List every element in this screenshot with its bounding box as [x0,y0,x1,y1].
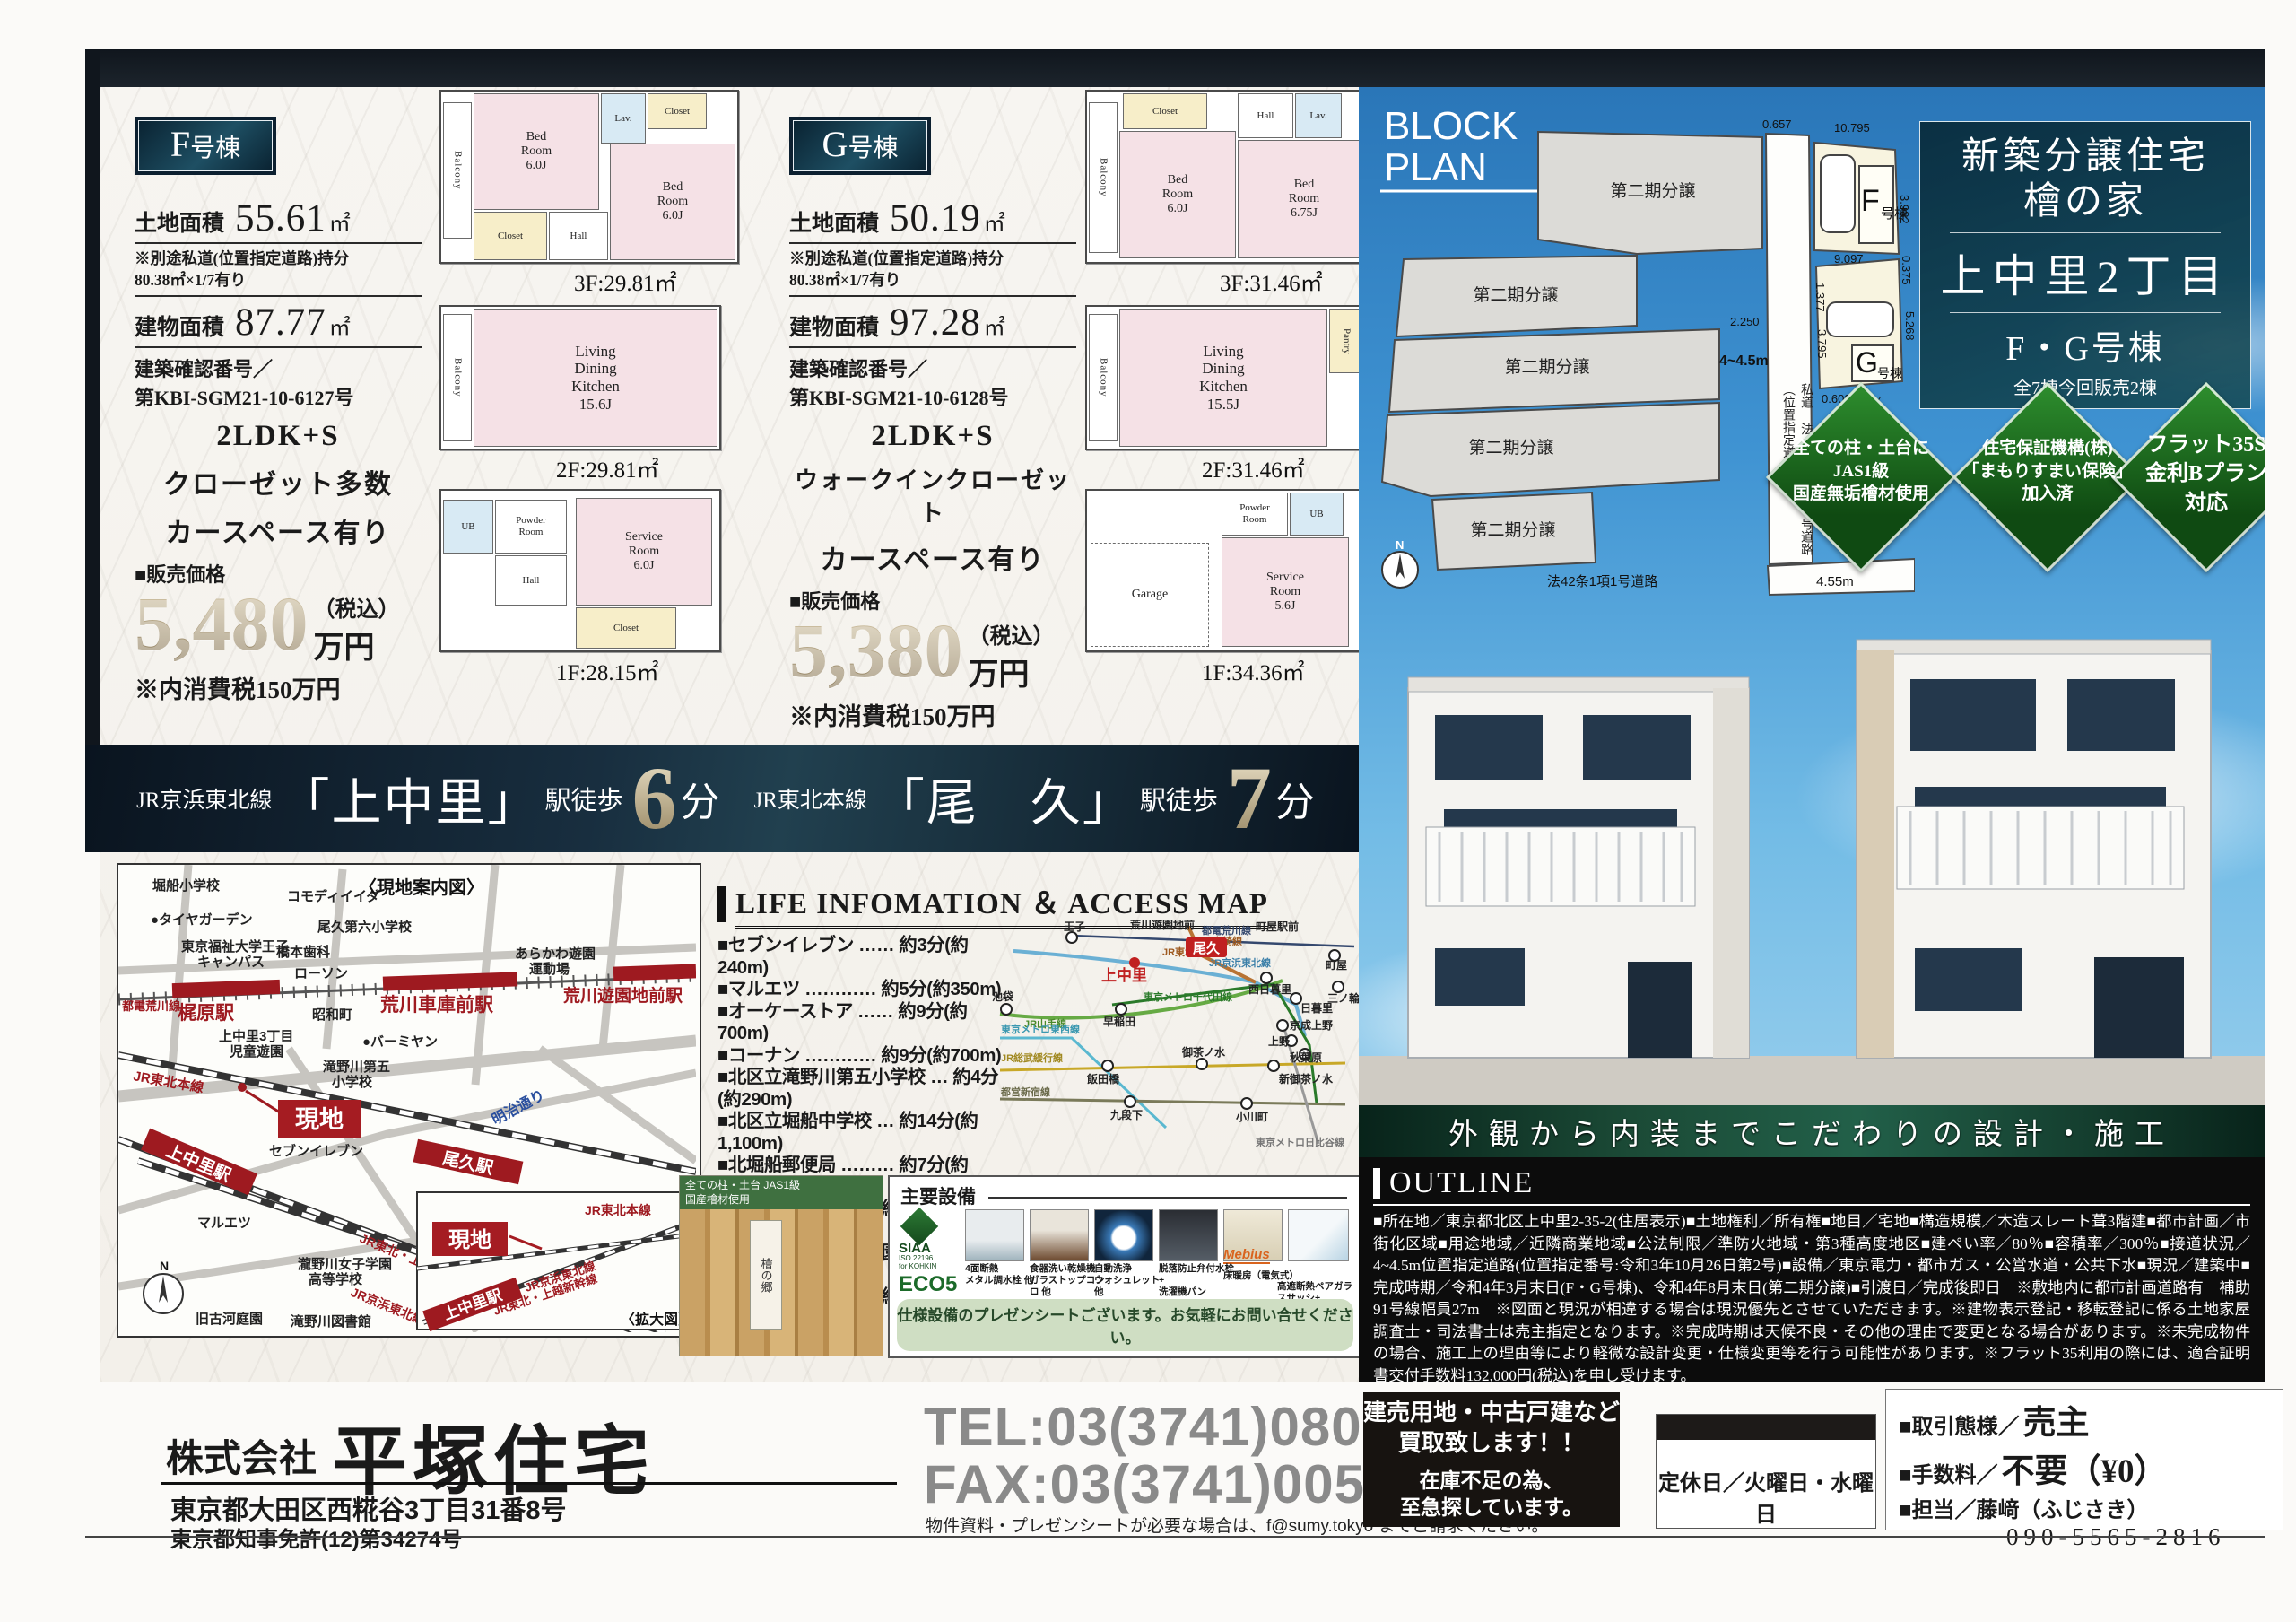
contact-value: 藤﨑（ふじさき） [1977,1492,2149,1523]
buyback-notice-box: 建売用地・中古戸建など 買取致します！！ 在庫不足の為、 至急探しています。 [1363,1392,1620,1527]
f-price-row: 5,480 （税込） 万円 [135,588,422,667]
g-building-value: 97.28 [890,301,981,344]
blockplan-parcel-3: 第二期分譲 [1504,357,1589,377]
f-building-label: 建物面積 [135,310,224,342]
f-spec-block: 土地面積 55.61 ㎡ ※別途私道(位置指定道路)持分 80.38㎡×1/7有… [135,193,422,705]
f-1f-service-room: Service Room 6.0J [576,498,712,606]
rail-network-map: 王子 荒川遊園地前 町屋駅前 町屋 三ノ輪 西日暮里 日暮里 池袋 早稲田 京成… [987,920,1359,1166]
title-line-4: F・G号棟 [1920,320,2250,370]
g-price-unit: 万円 [969,650,1055,693]
rail-ochanomizu: 御茶ノ水 [1181,1045,1226,1059]
rail-kaminakazato-station: 上中里 [1101,966,1147,984]
blockplan-dim-0657: 0.657 [1762,118,1792,131]
f-badge-letter: F [170,124,190,164]
banner-walk-1: 駅徒歩 [544,780,622,817]
rail-nishinippori: 西日暮里 [1248,982,1291,996]
title-divider-1 [1950,232,2221,233]
station-access-banner: JR京浜東北線 「上中里」 駅徒歩 6 分 JR東北本線 「尾 久」 駅徒歩 7… [85,745,1359,852]
diamond-3-line-2: 金利Bプラン [2112,459,2265,488]
map-poi-hashimoto: 橋本歯科 [276,944,330,960]
f-land-row: 土地面積 55.61 ㎡ [135,193,422,244]
blockplan-dim-3795: 3.795 [1815,329,1829,359]
f-feature-1: クローゼット多数 [135,462,422,501]
map-poi-library: 滝野川図書館 [291,1313,371,1330]
access-item: ■コーナン ………… 約9分(約700m) [717,1045,1004,1068]
phone-fax: FAX:03(3741)0050 [924,1453,1396,1515]
g-3f-area: 3F:31.46㎡ [1220,266,1323,298]
mebius-logo: Mebius [1223,1247,1270,1264]
map-poi-joshi-1: 瀧野川女子学園 [298,1256,392,1272]
diamond-3-line-1: フラット35S [2112,431,2265,459]
access-title-bar [717,886,726,922]
banner-line-1: JR京浜東北線 [136,782,272,815]
outline-title-bar [1373,1168,1380,1199]
map-poi-lawson: ローソン [294,966,348,981]
banner-unit-2: 分 [1275,770,1315,827]
g-spec-block: 土地面積 50.19 ㎡ ※別途私道(位置指定道路)持分 80.38㎡×1/7有… [789,193,1076,732]
equipment-photo-faucet [1159,1209,1218,1261]
left-frame-edge [85,49,100,852]
f-1f-area: 1F:28.15㎡ [556,655,659,687]
photo-caption-text: 外観から内装までこだわりの設計・施工 [1448,1110,2175,1153]
rail-keiseiueno: 京成上野 [1290,1018,1333,1032]
g-badge-suffix: 号棟 [848,135,898,162]
equipment-title-rule [988,1197,1347,1199]
g-confirmation-number: 建築確認番号／ 第KBI-SGM21-10-6128号 [789,348,1076,413]
g-building-label: 建物面積 [789,310,879,342]
map-poi-horifune: 堀船小学校 [152,877,221,894]
access-item: ■北区立堀船中学校 … 約14分(約1,100m) [717,1111,1004,1155]
rail-ogawamachi: 小川町 [1236,1110,1268,1123]
map-poi-seven: セブンイレブン [269,1143,363,1159]
equipment-panel: 主要設備 SIAA ISO 22196 for KOHKIN ECO5 Mebi… [888,1175,1362,1358]
hinoki-photo-panel: 全ての柱・土台 JAS1級 国産檜材使用 檜の郷 [679,1175,883,1356]
map-poi-oku6: 尾久第六小学校 [317,919,413,935]
g-unit-badge: G号棟 [789,117,931,175]
map-poi-joshi-2: 高等学校 [309,1271,363,1287]
f-feature-2: カースペース有り [135,510,422,550]
g-land-row: 土地面積 50.19 ㎡ [789,193,1076,244]
deal-type-row: ■取引態様／ 売主 [1899,1395,2270,1443]
f-3f-closet-1: Closet [648,93,707,129]
blockplan-parcel-4: 第二期分譲 [1468,438,1553,458]
f-1f-closet: Closet [576,607,676,649]
g-building-row: 建物面積 97.28 ㎡ [789,297,1076,348]
rail-hibiya-label: 東京メトロ日比谷線 [1256,1136,1344,1148]
g-3f-bedroom-2: Bed Room 6.75J [1238,140,1370,258]
blockplan-road-width: 4~4.5m [1719,353,1769,369]
banner-walk-2: 駅徒歩 [1140,780,1218,817]
company-underline [161,1482,897,1485]
phone-tel: TEL:03(3741)0800 [924,1396,1393,1458]
f-2f-floorplan: Balcony Living Dining Kitchen 15.6J [439,305,721,450]
f-layout: 2LDK+S [135,420,422,453]
f-building-unit: ㎡ [329,310,351,341]
access-item: ■北区立滝野川第五小学校 … 約4分(約290m) [717,1067,1004,1111]
access-item: ■セブンイレブン …… 約3分(約240m) [717,935,1004,979]
map-poi-univ-2: キャンパス [197,955,265,970]
map-poi-bamiyan: ●バーミヤン [362,1034,438,1050]
eco5-logo-text: ECO5 [899,1274,958,1295]
diamond-1-line-2: JAS1級 [1767,460,1955,484]
rail-ikebukuro: 池袋 [992,990,1014,1003]
outline-header: OUTLINE [1373,1166,2250,1200]
hinoki-wood-photo: 檜の郷 [680,1209,883,1356]
f-unit-badge: F号棟 [135,117,276,175]
f-land-value: 55.61 [235,196,326,240]
banner-line-2: JR東北本線 [754,782,867,815]
g-land-label: 土地面積 [789,205,879,238]
blockplan-dim-1377: 1.377 [1813,283,1827,312]
buyback-line-1: 建売用地・中古戸建など 買取致します！！ [1363,1398,1620,1459]
banner-unit-1: 分 [681,770,720,827]
buyback-line-2: 在庫不足の為、 至急探しています。 [1363,1468,1620,1522]
access-item: ■オーケーストア …… 約9分(約700m) [717,1001,1004,1045]
g-price-tax: （税込） [969,618,1055,650]
blockplan-parcel-2: 第二期分譲 [1473,285,1558,305]
map-inset-tohoku-label: JR東北本線 [585,1203,651,1217]
f-tax-note: ※内消費税150万円 [135,670,422,705]
g-1f-area: 1F:34.36㎡ [1202,655,1305,687]
f-badge-suffix: 号棟 [190,135,240,162]
blockplan-f-letter: F [1861,184,1880,218]
g-land-unit: ㎡ [984,205,1005,237]
map-poi-jido-2: 児童遊園 [229,1043,283,1060]
map-poi-showa: 昭和町 [312,1007,352,1023]
f-confirmation-number: 建築確認番号／ 第KBI-SGM21-10-6127号 [135,348,422,413]
rail-sobu-label: JR総武緩行線 [1001,1051,1063,1064]
blockplan-title-2: PLAN [1384,145,1487,189]
f-price-tax: （税込） [314,591,400,623]
rail-oku-station: 尾久 [1193,940,1221,956]
rail-chiyoda-label: 東京メトロ千代田線 [1144,990,1232,1003]
g-2f-area: 2F:31.46㎡ [1202,452,1305,484]
g-2f-balcony: Balcony [1089,314,1118,441]
map-inset-genchi: 現地 [448,1228,491,1252]
g-3f-balcony: Balcony [1089,102,1118,253]
outline-text: ■所在地／東京都北区上中里2-35-2(住居表示)■土地権利／所有権■地目／宅地… [1373,1211,2250,1387]
diamond-1-line-3: 国産無垢檜材使用 [1767,483,1955,506]
outline-section: OUTLINE ■所在地／東京都北区上中里2-35-2(住居表示)■土地権利／所… [1359,1157,2265,1382]
rail-machiya: 町屋 [1326,959,1347,972]
houses-rendering [1359,554,2265,1105]
f-building-row: 建物面積 87.77 ㎡ [135,297,422,348]
outline-title: OUTLINE [1389,1166,1534,1200]
hinoki-strip-text: 全ての柱・土台 JAS1級 国産檜材使用 [680,1176,883,1209]
rail-shinjuku-label: 都営新宿線 [1000,1086,1050,1098]
banner-station-2: 「尾 久」 [874,763,1135,835]
siaa-kohkin-text: for KOHKIN [899,1263,958,1271]
blockplan-parcel-5: 第二期分譲 [1470,520,1555,540]
f-land-unit: ㎡ [329,205,351,237]
title-line-3: 上中里2丁目 [1920,240,2250,305]
site-map-svg: 上中里駅 尾久駅 梶原駅 荒川車庫前駅 荒川遊園地前駅 都電荒川線 JR東北本線… [118,865,696,1332]
g-1f-powder-room: Powder Room [1222,493,1288,536]
rail-ueno: 上野 [1268,1034,1290,1048]
g-feature-2: カースペース有り [789,537,1076,577]
rail-waseda: 早稲田 [1103,1015,1135,1028]
g-2f-ldk: Living Dining Kitchen 15.5J [1119,309,1327,447]
f-3f-closet-2: Closet [474,212,547,260]
rail-iidabashi: 飯田橋 [1086,1072,1120,1086]
property-title-box: 新築分譲住宅 檜の家 上中里2丁目 F・G号棟 全7棟今回販売2棟 [1919,121,2251,409]
rail-yuenchimae: 荒川遊園地前 [1129,920,1195,931]
g-badge-letter: G [822,124,848,164]
g-1f-garage: Garage [1091,543,1209,647]
title-divider-2 [1950,312,2221,313]
contact-label: ■担当／ [1899,1492,1977,1523]
diamond-1-line-1: 全ての柱・土台に [1767,437,1955,460]
site-guide-map: 上中里駅 尾久駅 梶原駅 荒川車庫前駅 荒川遊園地前駅 都電荒川線 JR東北本線… [117,863,701,1338]
f-2f-area: 2F:29.81㎡ [556,452,659,484]
f-1f-hall: Hall [495,555,567,606]
g-3f-lavatory: Lav. [1295,93,1342,138]
company-prefix: 株式会社 [166,1428,317,1483]
holiday-box-header [1657,1415,1875,1440]
f-price-unit: 万円 [314,623,400,667]
f-1f-floorplan: UB Powder Room Service Room 6.0J Hall Cl… [439,489,721,652]
blockplan-dim-0375: 0.375 [1900,256,1913,285]
rail-shinochanomizu: 新御茶ノ水 [1279,1072,1334,1086]
rail-tozai-label: 東京メトロ東西線 [1001,1023,1080,1035]
map-compass-n: N [160,1259,169,1273]
holiday-text: 定休日／火曜日・水曜日 [1657,1465,1875,1528]
map-poi-maruetsu: マルエツ [197,1216,251,1231]
map-poi-jido-1: 上中里3丁目 [219,1028,293,1044]
holiday-box: 定休日／火曜日・水曜日 [1656,1414,1876,1529]
hinoki-tag-label: 檜の郷 [750,1220,782,1330]
photo-caption-band: 外観から内装までこだわりの設計・施工 [1359,1105,2265,1157]
f-3f-hall: Hall [549,212,608,260]
f-building-value: 87.77 [235,301,326,344]
equipment-photo-bath [965,1209,1024,1261]
g-price-row: 5,380 （税込） 万円 [789,615,1076,693]
title-line-1: 新築分譲住宅 [1920,135,2250,179]
g-3f-floorplan: Balcony Closet Hall Lav. Bed Room 6.0J B… [1085,90,1376,264]
deal-type-value: 売主 [2023,1395,2090,1443]
siaa-diamond-icon [900,1208,938,1245]
transaction-info-box: ■取引態様／ 売主 ■手数料／ 不要（¥0） ■担当／ 藤﨑（ふじさき） 090… [1885,1389,2283,1530]
diamond-text-1: 全ての柱・土台に JAS1級 国産無垢檜材使用 [1767,437,1955,506]
map-kajiwara-station: 梶原駅 [178,1003,235,1024]
f-3f-bedroom-1: Bed Room 6.0J [474,93,599,210]
blockplan-dim-3982: 3.982 [1898,195,1911,224]
f-land-label: 土地面積 [135,205,224,238]
g-layout: 2LDK+S [789,420,1076,453]
map-toden-line-label: 都電荒川線 [121,999,181,1013]
map-guide-title: 〈現地案内図〉 [359,876,484,898]
equipment-title: 主要設備 [900,1182,976,1209]
flyer-page: F号棟 土地面積 55.61 ㎡ ※別途私道(位置指定道路)持分 80.38㎡×… [0,0,2296,1622]
blockplan-g-letter: G [1856,346,1878,379]
blockplan-dim-10795: 10.795 [1834,121,1870,135]
f-3f-area: 3F:29.81㎡ [574,266,677,298]
top-frame-band [85,49,2265,87]
blockplan-dim-2250: 2.250 [1730,315,1760,328]
g-3f-hall: Hall [1238,93,1293,138]
diamond-text-3: フラット35S 金利Bプラン 対応 [2112,431,2265,518]
f-road-note: ※別途私道(位置指定道路)持分 80.38㎡×1/7有り [135,244,422,297]
g-1f-floorplan: Garage Powder Room UB Service Room 5.6J [1085,489,1367,652]
equipment-photo-toilet [1094,1209,1153,1261]
rail-nippori: 日暮里 [1300,1001,1333,1015]
diamond-3-line-3: 対応 [2112,489,2265,518]
fee-value: 不要（¥0） [2002,1443,2168,1492]
rail-oji: 王子 [1064,920,1085,933]
map-poi-univ-1: 東京福祉大学王子 [181,938,289,955]
blockplan-parcel-1: 第二期分譲 [1610,181,1695,201]
f-3f-bedroom-2: Bed Room 6.0J [610,144,735,260]
map-shako-station: 荒川車庫前駅 [380,994,494,1016]
contact-row: ■担当／ 藤﨑（ふじさき） [1899,1492,2270,1523]
map-poi-takinogawa5-2: 小学校 [332,1074,373,1090]
map-poi-ground-2: 運動場 [529,962,570,977]
map-genchi-label: 現地 [295,1106,344,1133]
g-3f-bedroom-1: Bed Room 6.0J [1119,131,1236,258]
f-1f-powder-room: Powder Room [495,500,567,554]
map-poi-tiregarden: ●タイヤガーデン [151,911,253,928]
blockplan-g-suffix: 号棟 [1877,366,1902,380]
title-line-2: 檜の家 [1920,179,2250,224]
access-item: ■マルエツ ………… 約5分(約350m) [717,979,1004,1001]
rail-toden-label: 都電荒川線 [1201,924,1251,937]
f-3f-floorplan: Balcony Bed Room 6.0J Lav. Closet Bed Ro… [439,90,739,264]
rail-keihin-label: JR京浜東北線 [1209,956,1271,969]
fee-label: ■手数料／ [1899,1457,1998,1488]
siaa-text: SIAA [899,1242,958,1255]
g-building-unit: ㎡ [984,310,1005,341]
banner-minutes-2: 7 [1227,758,1272,839]
f-3f-balcony: Balcony [443,102,472,239]
g-land-value: 50.19 [890,196,981,240]
rail-kudanshita: 九段下 [1109,1108,1143,1121]
f-2f-balcony: Balcony [443,314,472,441]
blockplan-compass-n: N [1396,538,1404,552]
map-poi-takinogawa5-1: 滝野川第五 [323,1059,390,1075]
siaa-eco5-logo: SIAA ISO 22196 for KOHKIN ECO5 [899,1209,958,1295]
g-feature-1: ウォークインクローゼット [789,462,1076,528]
equipment-banner: 仕様設備のプレゼンシートございます。お気軽にお問い合せください。 [897,1299,1353,1351]
outline-rule [1373,1204,2250,1206]
g-price-number: 5,380 [789,615,963,688]
banner-minutes-1: 6 [632,758,677,839]
g-2f-floorplan: Balcony Living Dining Kitchen 15.5J Pant… [1085,305,1367,450]
map-poi-garden: 旧古河庭園 [196,1311,263,1327]
g-1f-ub: UB [1290,493,1344,536]
banner-station-1: 「上中里」 [279,763,539,835]
f-3f-lavatory: Lav. [601,93,646,144]
equipment-photo-sash [1288,1209,1349,1261]
blockplan-dim-9097: 9.097 [1834,252,1864,266]
f-price-number: 5,480 [135,588,309,661]
map-poi-ground-1: あらかわ遊園 [515,946,596,962]
rail-akihabara: 秋葉原 [1290,1051,1322,1064]
map-yuenchi-station: 荒川遊園地前駅 [563,985,683,1006]
g-tax-note: ※内消費税150万円 [789,697,1076,732]
blockplan-title-1: BLOCK [1384,104,1518,148]
f-1f-ub: UB [443,500,493,554]
rail-machiyaekimae: 町屋駅前 [1256,920,1299,933]
footer-bottom-rule [85,1536,2265,1538]
fee-row: ■手数料／ 不要（¥0） [1899,1443,2270,1492]
blockplan-dim-5268: 5.268 [1903,311,1915,341]
g-1f-service-room: Service Room 5.6J [1222,537,1349,647]
g-3f-closet: Closet [1123,93,1207,129]
equipment-photo-kitchen [1030,1209,1089,1261]
g-road-note: ※別途私道(位置指定道路)持分 80.38㎡×1/7有り [789,244,1076,297]
deal-type-label: ■取引態様／ [1899,1408,2020,1440]
f-2f-ldk: Living Dining Kitchen 15.6J [474,309,717,447]
